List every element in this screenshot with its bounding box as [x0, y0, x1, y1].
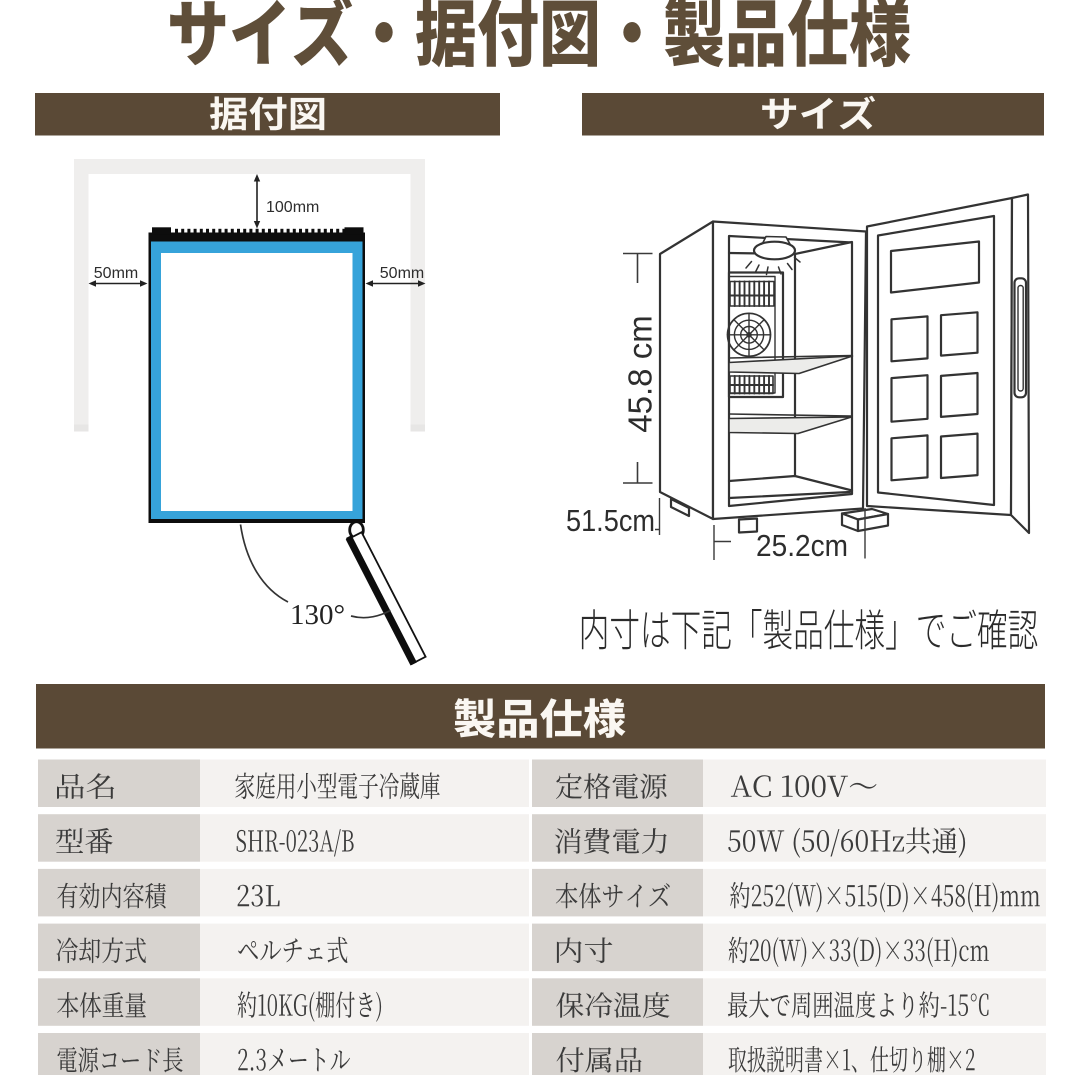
svg-text:50mm: 50mm — [380, 265, 424, 282]
svg-text:130°: 130° — [290, 599, 345, 631]
svg-text:25.2cm: 25.2cm — [756, 528, 848, 563]
svg-text:51.5cm: 51.5cm — [566, 503, 655, 538]
svg-text:100mm: 100mm — [266, 199, 319, 216]
svg-text:50mm: 50mm — [94, 265, 138, 282]
svg-text:45.8 cm: 45.8 cm — [622, 315, 659, 432]
